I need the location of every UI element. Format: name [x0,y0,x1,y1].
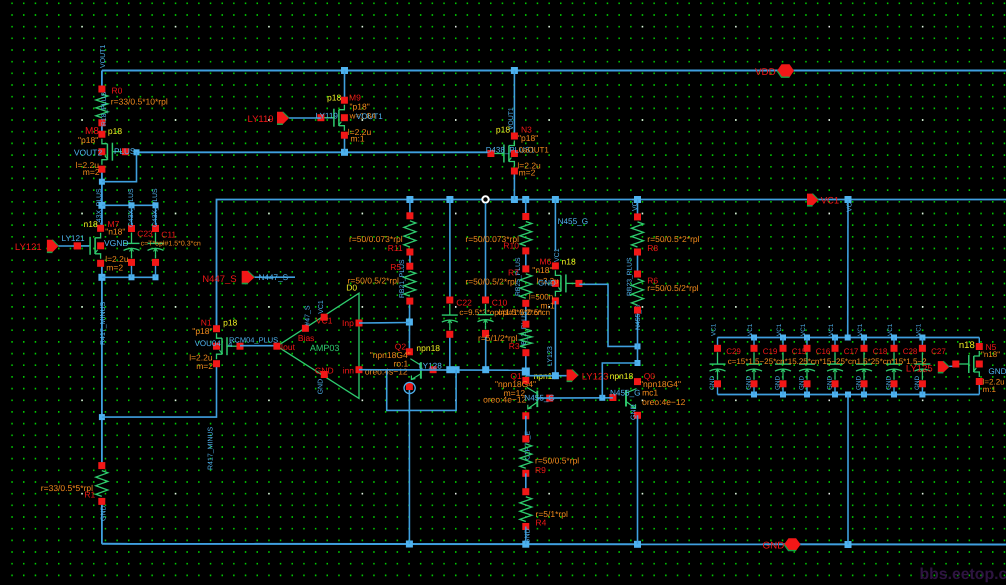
svg-text:"p18": "p18" [192,326,212,336]
svg-text:VOUT2: VOUT2 [74,148,103,158]
svg-text:Iout: Iout [281,342,296,352]
svg-text:GND: GND [746,376,753,390]
svg-text:VGND: VGND [104,238,129,248]
svg-text:n18: n18 [562,256,576,266]
svg-text:C28: C28 [903,347,918,356]
svg-text:"p18": "p18" [78,135,98,145]
svg-text:R417_MINUS: R417_MINUS [208,426,215,470]
svg-text:VC1: VC1 [747,323,754,336]
svg-text:npn18: npn18 [416,343,440,353]
svg-text:VC1: VC1 [776,323,783,336]
svg-text:"n18": "n18" [981,350,1000,359]
svg-text:n18: n18 [84,219,98,229]
svg-text:R9: R9 [535,465,546,475]
svg-text:Inp: Inp [342,318,354,328]
svg-text:N455_G: N455_G [558,217,589,226]
svg-text:C18: C18 [873,347,888,356]
svg-text:C27: C27 [931,347,946,356]
svg-text:LY119: LY119 [248,114,274,125]
svg-text:C29: C29 [726,347,741,356]
svg-text:c=T*opl#1.5*0.3*cn: c=T*opl#1.5*0.3*cn [141,240,201,248]
svg-text:VC1: VC1 [554,248,561,262]
svg-text:C22: C22 [456,297,472,307]
svg-text:N447_S: N447_S [202,274,236,285]
svg-text:GND: GND [799,376,806,390]
svg-text:R4: R4 [536,517,547,527]
svg-text:LY123: LY123 [547,346,554,366]
svg-text:m=2: m=2 [519,167,536,177]
svg-text:m:1: m:1 [350,134,364,144]
svg-text:R10: R10 [503,240,519,250]
svg-text:m:1: m:1 [540,300,554,310]
svg-text:R8: R8 [647,243,658,253]
svg-text:LY121: LY121 [62,234,86,243]
svg-text:"n18": "n18" [532,265,552,275]
svg-text:n18: n18 [959,340,975,351]
svg-text:LY125: LY125 [906,363,933,374]
svg-text:C11: C11 [161,230,176,240]
svg-text:VOU04: VOU04 [195,339,222,348]
svg-text:R417_MINUS: R417_MINUS [100,301,107,345]
svg-text:C16: C16 [816,347,831,356]
svg-text:m=2: m=2 [196,361,213,371]
svg-text:bbs.eetop.cn.: bbs.eetop.cn. [920,566,1006,583]
svg-text:oreo:4e−12: oreo:4e−12 [642,397,686,407]
svg-text:LY121: LY121 [15,242,42,253]
svg-text:GND: GND [538,279,556,288]
svg-text:c=15*1.5−25*cn*15.25*cn*15−25*: c=15*1.5−25*cn*15.25*cn*15−25*cn1.5*25*c… [728,357,927,366]
svg-text:p18: p18 [327,92,341,102]
svg-text:Bias: Bias [298,333,315,343]
svg-text:VC1: VC1 [828,323,835,336]
svg-text:R3: R3 [509,341,520,351]
svg-text:VC1: VC1 [915,323,922,336]
svg-text:GND: GND [631,404,638,420]
svg-text:inn: inn [343,366,355,376]
svg-text:VC1: VC1 [847,198,854,212]
svg-text:r=50/0.5/2*rpl: r=50/0.5/2*rpl [465,277,516,287]
svg-text:VC1: VC1 [632,197,639,211]
svg-text:D0: D0 [346,282,357,292]
svg-text:GND: GND [988,367,1006,376]
svg-text:R11: R11 [388,243,403,253]
svg-text:GND: GND [775,376,782,390]
svg-text:PLUS: PLUS [114,147,136,156]
svg-text:VC1: VC1 [316,315,333,325]
svg-text:VOUT1: VOUT1 [100,45,107,68]
svg-text:R18_PLUS: R18_PLUS [101,92,108,126]
svg-text:LY119: LY119 [316,112,339,121]
svg-text:RCM04_PLUS: RCM04_PLUS [229,335,278,344]
svg-text:"p18": "p18" [350,102,370,112]
svg-text:#47_S: #47_S [305,305,312,326]
svg-text:C43X_PLUS: C43X_PLUS [152,188,159,227]
svg-text:LY123: LY123 [582,371,609,382]
svg-text:GND: GND [709,376,716,390]
svg-text:VC1: VC1 [318,300,325,314]
svg-text:p18: p18 [223,318,237,328]
svg-text:C23: C23 [137,229,153,239]
svg-text:C17: C17 [844,347,859,356]
svg-text:GND: GND [763,541,785,552]
svg-text:R5: R5 [390,262,401,272]
svg-text:VOUT1: VOUT1 [356,112,383,121]
svg-text:GND: GND [101,505,108,521]
svg-text:"n18": "n18" [105,227,125,237]
svg-text:C43X_PLUS: C43X_PLUS [128,188,135,227]
svg-text:GND: GND [914,376,921,390]
svg-text:N447_S: N447_S [259,273,289,282]
svg-text:R0: R0 [112,86,123,96]
svg-text:VDD: VDD [755,67,776,78]
svg-text:R1: R1 [84,490,95,500]
svg-text:GND: GND [856,376,863,390]
svg-text:p18: p18 [108,126,122,136]
svg-text:GND: GND [827,376,834,390]
svg-text:m:1: m:1 [983,385,997,394]
svg-text:N455_G: N455_G [610,389,641,398]
svg-text:m=2: m=2 [83,167,100,177]
svg-text:VC1: VC1 [800,323,807,336]
svg-text:r=50/0.5/2*rpl: r=50/0.5/2*rpl [647,283,698,293]
svg-text:VC1: VC1 [711,323,718,336]
svg-text:r=33/0.5*10*rpl: r=33/0.5*10*rpl [111,97,168,107]
svg-text:r=50/0.5*rpl: r=50/0.5*rpl [535,456,579,466]
svg-text:GND: GND [315,366,334,376]
svg-text:GND: GND [318,379,325,395]
svg-text:VC1: VC1 [857,323,864,336]
svg-text:"p18": "p18" [518,133,538,143]
svg-text:m=2: m=2 [106,263,123,273]
svg-text:RB23_PLUS: RB23_PLUS [627,257,634,296]
svg-text:npn18: npn18 [610,371,634,381]
svg-text:VC1: VC1 [887,323,894,336]
svg-text:0aOUT1: 0aOUT1 [519,146,550,155]
svg-text:GND: GND [886,376,893,390]
svg-text:VOUT1: VOUT1 [508,107,515,130]
svg-text:VC1: VC1 [821,195,839,206]
svg-text:C19: C19 [763,347,778,356]
svg-text:AMP03: AMP03 [310,343,340,353]
svg-text:oreo:4e−12: oreo:4e−12 [483,394,527,404]
svg-text:mc1: mc1 [642,387,658,397]
svg-text:C10: C10 [492,298,508,308]
